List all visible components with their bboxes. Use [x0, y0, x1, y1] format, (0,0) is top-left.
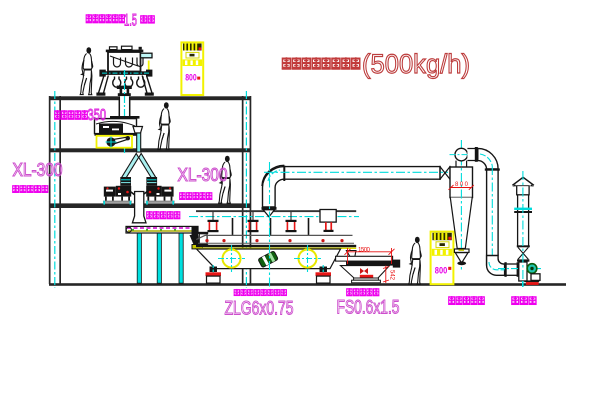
- svg-text:FS0.6x1.5: FS0.6x1.5: [337, 298, 400, 319]
- svg-text:542: 542: [389, 270, 395, 281]
- svg-text:XL-300: XL-300: [13, 159, 63, 180]
- svg-text:(500kg/h): (500kg/h): [362, 49, 470, 79]
- svg-text:800: 800: [185, 73, 197, 83]
- svg-text:800: 800: [435, 266, 448, 277]
- svg-text:1.5: 1.5: [124, 12, 137, 30]
- svg-text:800: 800: [455, 182, 469, 188]
- svg-text:ZLG6x0.75: ZLG6x0.75: [225, 299, 294, 320]
- svg-text:1500: 1500: [358, 246, 371, 253]
- svg-text:XL-300: XL-300: [178, 164, 228, 185]
- svg-text:350: 350: [88, 107, 107, 124]
